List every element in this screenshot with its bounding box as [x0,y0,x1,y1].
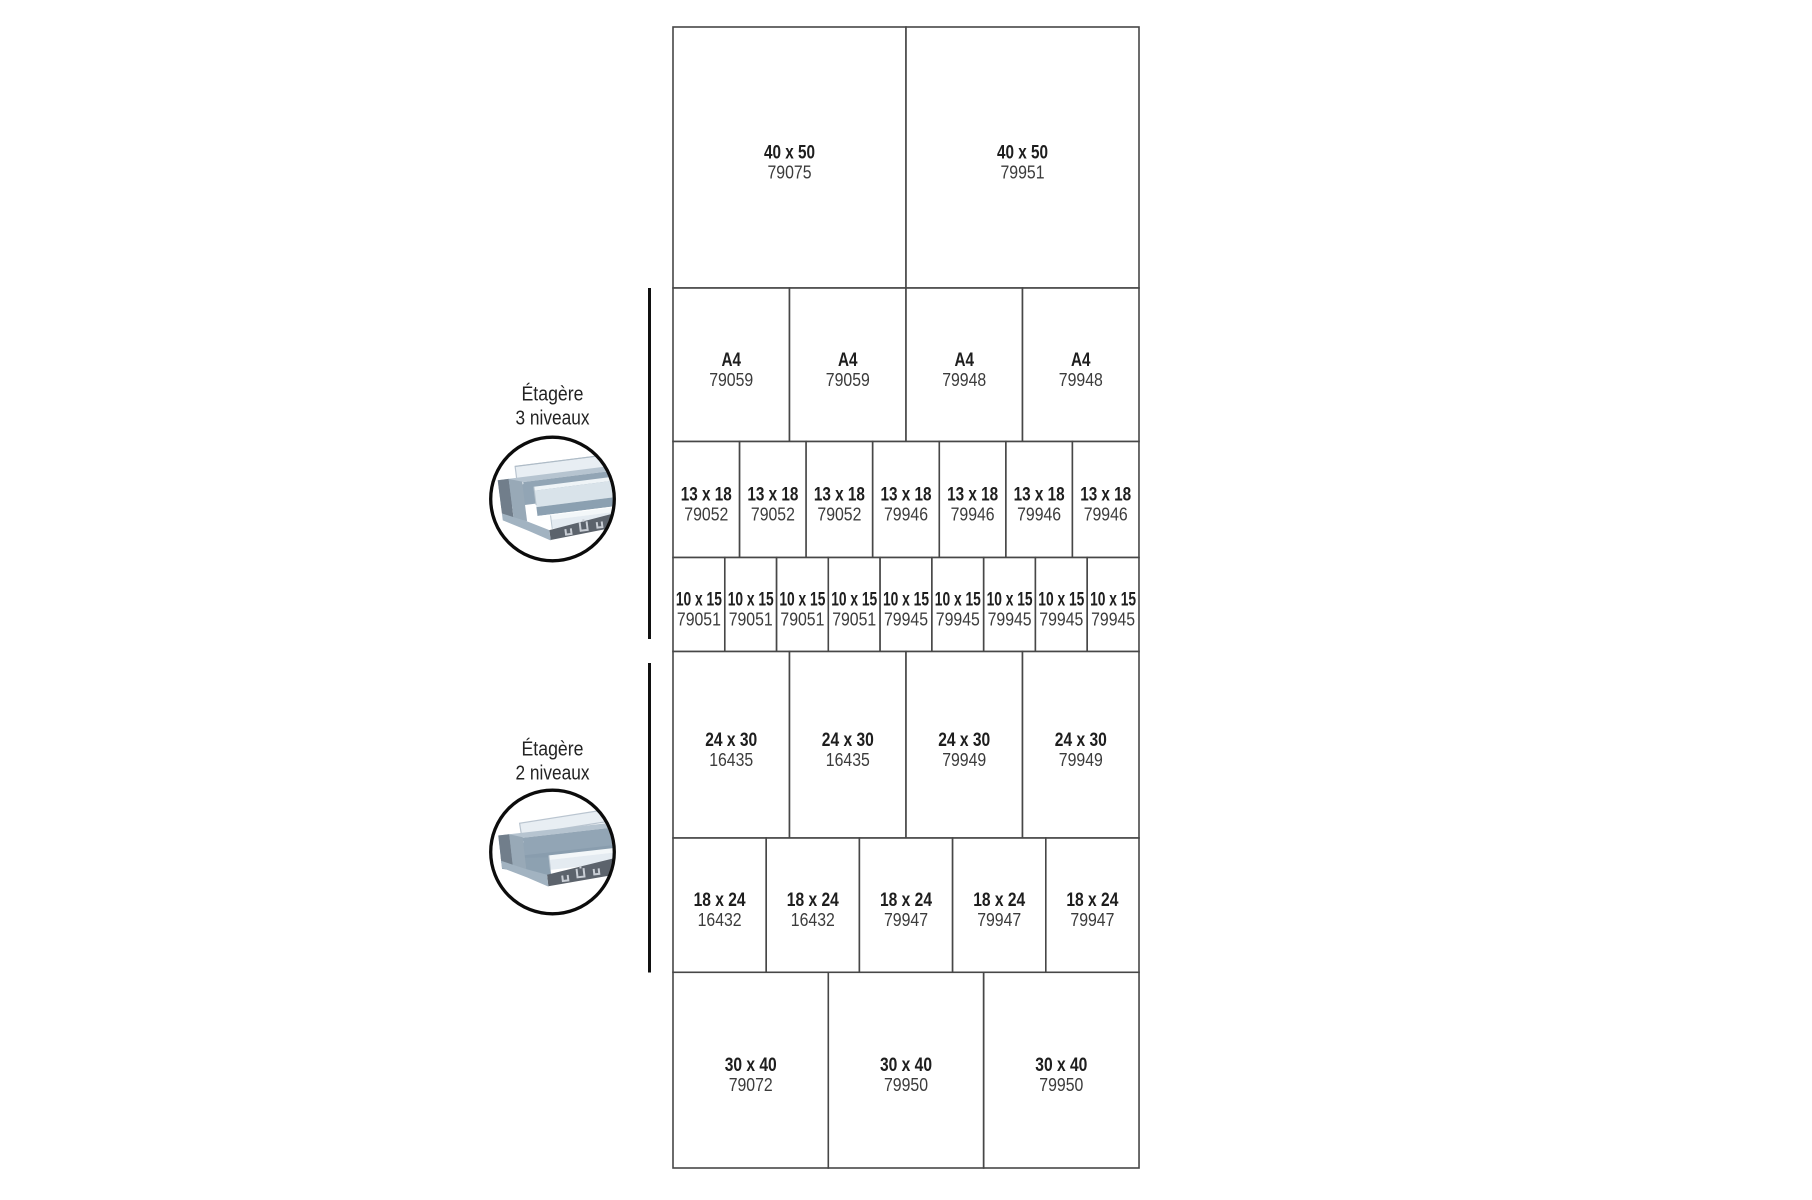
svg-text:79947: 79947 [884,910,928,930]
svg-text:79052: 79052 [751,505,795,525]
svg-text:79075: 79075 [768,163,812,183]
svg-text:79051: 79051 [729,610,773,630]
svg-text:18 x 24: 18 x 24 [787,890,839,911]
svg-text:79949: 79949 [942,750,986,770]
svg-text:24 x 30: 24 x 30 [1055,730,1107,751]
svg-text:79950: 79950 [884,1075,928,1095]
svg-text:10 x 15: 10 x 15 [1090,590,1136,611]
svg-text:79948: 79948 [942,370,986,390]
svg-text:79052: 79052 [684,505,728,525]
svg-text:10 x 15: 10 x 15 [676,590,722,611]
svg-text:10 x 15: 10 x 15 [883,590,929,611]
svg-text:79946: 79946 [1017,505,1061,525]
svg-text:79059: 79059 [709,370,753,390]
svg-text:18 x 24: 18 x 24 [694,890,746,911]
svg-text:3 niveaux: 3 niveaux [516,406,591,429]
svg-text:79948: 79948 [1059,370,1103,390]
svg-text:A4: A4 [721,350,741,371]
svg-text:A4: A4 [838,350,858,371]
svg-text:A4: A4 [1071,350,1091,371]
svg-text:30 x 40: 30 x 40 [725,1055,777,1076]
svg-text:79945: 79945 [1039,610,1083,630]
svg-text:10 x 15: 10 x 15 [831,590,877,611]
svg-text:79051: 79051 [677,610,721,630]
svg-text:79946: 79946 [884,505,928,525]
svg-text:10 x 15: 10 x 15 [935,590,981,611]
svg-text:10 x 15: 10 x 15 [987,590,1033,611]
svg-text:13 x 18: 13 x 18 [1080,485,1131,506]
svg-text:10 x 15: 10 x 15 [1038,590,1084,611]
svg-text:13 x 18: 13 x 18 [881,485,932,506]
svg-text:40 x 50: 40 x 50 [997,143,1048,164]
svg-text:79949: 79949 [1059,750,1103,770]
svg-text:79945: 79945 [1091,610,1135,630]
svg-text:79946: 79946 [1084,505,1128,525]
svg-text:13 x 18: 13 x 18 [947,485,998,506]
svg-text:79946: 79946 [951,505,995,525]
svg-text:10 x 15: 10 x 15 [779,590,825,611]
svg-text:79950: 79950 [1039,1075,1083,1095]
svg-text:Étagère: Étagère [522,382,584,405]
svg-text:79072: 79072 [729,1075,773,1095]
svg-text:79052: 79052 [817,505,861,525]
svg-text:18 x 24: 18 x 24 [1066,890,1118,911]
svg-text:79945: 79945 [936,610,980,630]
svg-text:A4: A4 [954,350,974,371]
svg-text:79945: 79945 [988,610,1032,630]
svg-text:18 x 24: 18 x 24 [973,890,1025,911]
svg-text:13 x 18: 13 x 18 [814,485,865,506]
svg-text:79945: 79945 [884,610,928,630]
svg-text:79947: 79947 [1070,910,1114,930]
svg-text:2 niveaux: 2 niveaux [516,761,591,784]
svg-text:79051: 79051 [832,610,876,630]
svg-text:30 x 40: 30 x 40 [1035,1055,1087,1076]
svg-text:18 x 24: 18 x 24 [880,890,932,911]
svg-text:Étagère: Étagère [522,737,584,760]
svg-text:16432: 16432 [791,910,835,930]
svg-text:24 x 30: 24 x 30 [822,730,874,751]
svg-text:16435: 16435 [709,750,753,770]
svg-text:24 x 30: 24 x 30 [705,730,757,751]
svg-text:10 x 15: 10 x 15 [728,590,774,611]
svg-text:13 x 18: 13 x 18 [1014,485,1065,506]
svg-text:13 x 18: 13 x 18 [747,485,798,506]
svg-text:16435: 16435 [826,750,870,770]
svg-text:40 x 50: 40 x 50 [764,143,815,164]
svg-text:16432: 16432 [698,910,742,930]
svg-text:24 x 30: 24 x 30 [938,730,990,751]
svg-text:79059: 79059 [826,370,870,390]
svg-text:79051: 79051 [780,610,824,630]
svg-text:13 x 18: 13 x 18 [681,485,732,506]
svg-text:30 x 40: 30 x 40 [880,1055,932,1076]
svg-text:79947: 79947 [977,910,1021,930]
svg-text:79951: 79951 [1001,163,1045,183]
